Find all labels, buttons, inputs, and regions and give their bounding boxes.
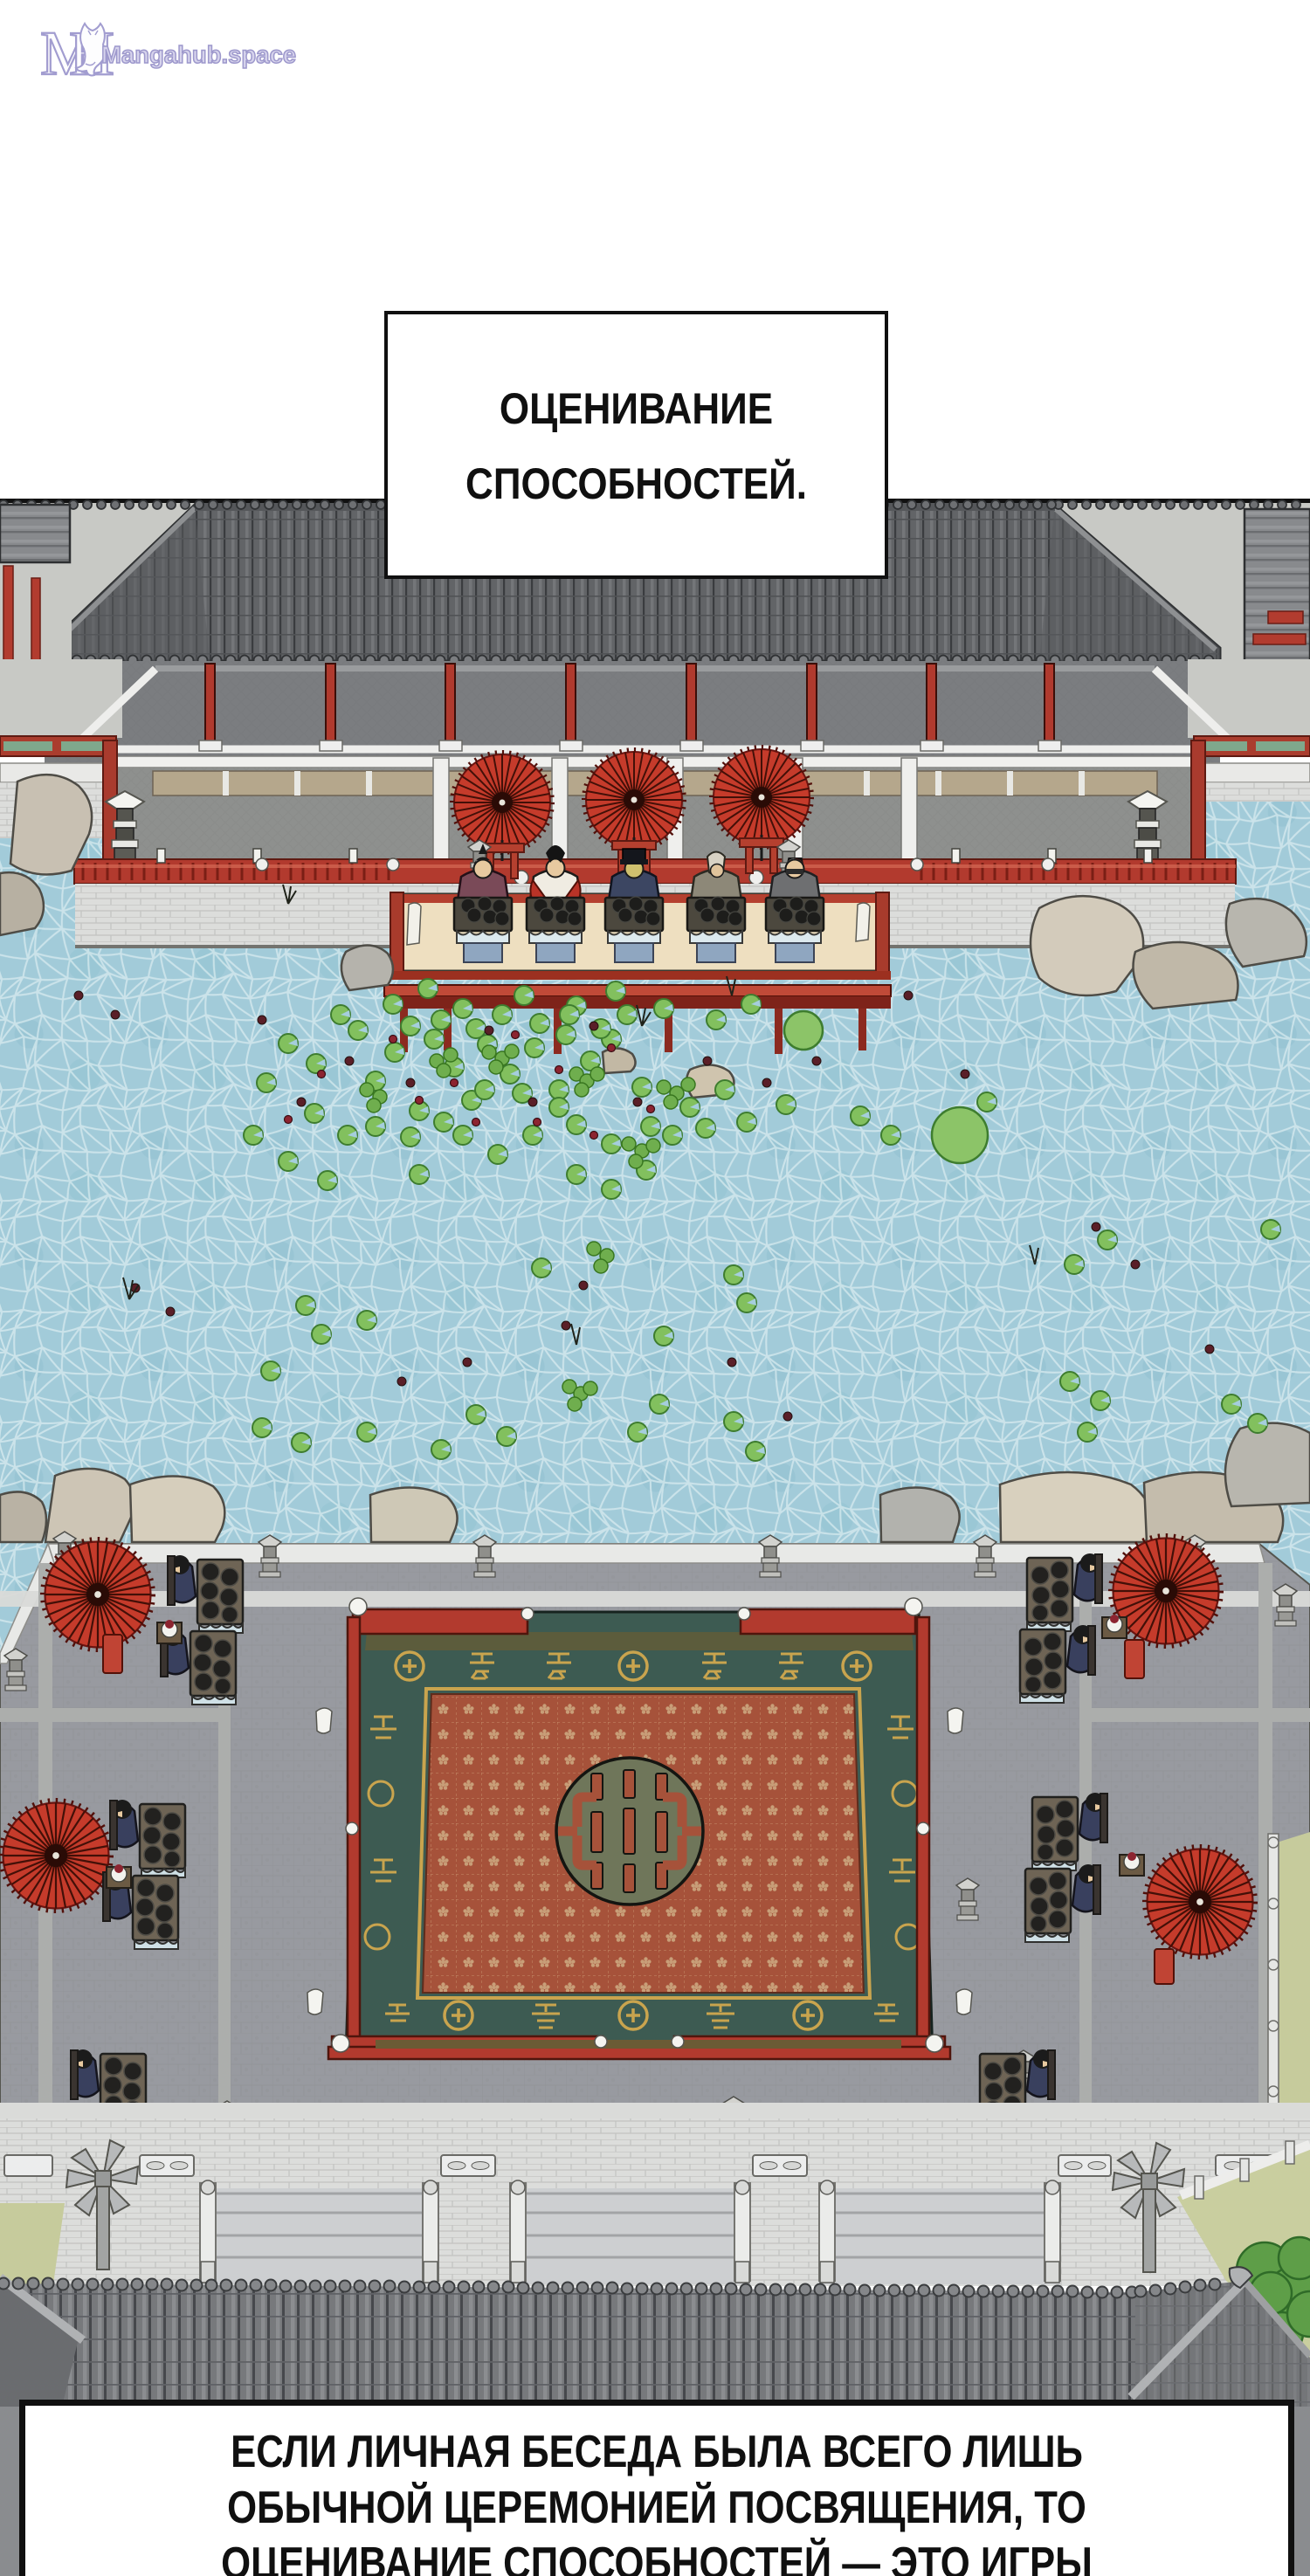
svg-text:Mangahub.space: Mangahub.space — [101, 41, 296, 68]
